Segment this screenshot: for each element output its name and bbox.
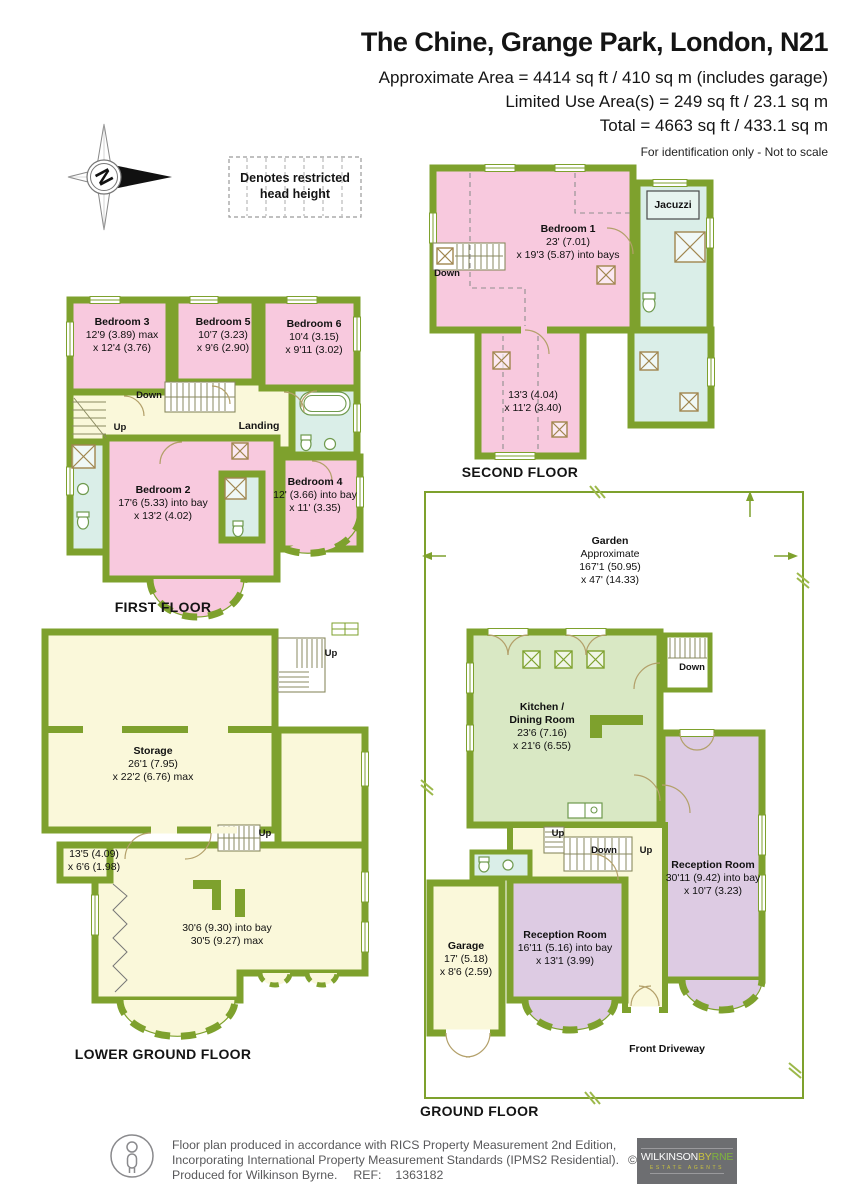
ground-floor-title: GROUND FLOOR	[420, 1103, 539, 1119]
total-area: Total = 4663 sq ft / 433.1 sq m	[361, 114, 828, 138]
french-door	[680, 730, 714, 737]
window	[287, 297, 317, 304]
shower-icon	[675, 232, 705, 262]
up-label: Up	[544, 828, 572, 839]
window	[759, 815, 766, 855]
window	[430, 213, 437, 243]
staircase-center	[165, 382, 235, 412]
up-label: Up	[251, 828, 279, 839]
toilet-icon	[479, 857, 489, 872]
attic-room	[631, 330, 711, 425]
down-label: Down	[674, 662, 710, 673]
boundary-break	[789, 1063, 801, 1078]
window	[362, 872, 369, 902]
door-g1ap	[151, 827, 177, 834]
scale-note: For identification only - Not to scale	[361, 145, 828, 159]
reception1-room	[662, 733, 762, 980]
corridor-dims-label: 13'5 (4.09) x 6'6 (1.98)	[44, 848, 144, 874]
logo-subtitle: ESTATE AGENTS	[650, 1165, 724, 1174]
window	[362, 752, 369, 786]
wilkinson-byrne-logo: WILKINSONBYRNE ESTATE AGENTS	[637, 1138, 737, 1184]
bay-window	[307, 973, 337, 985]
bay-window	[682, 980, 762, 1010]
lower-ground-plan: Storage 26'1 (7.95) x 22'2 (6.76) max Up…	[35, 622, 380, 1070]
rooflight-icon	[232, 443, 248, 459]
down-label: Down	[429, 268, 465, 279]
interior-wall	[48, 726, 83, 733]
door-arc	[446, 1033, 470, 1057]
toilet-icon	[643, 293, 655, 312]
up-label: Up	[632, 845, 660, 856]
ref-label: REF:	[353, 1168, 381, 1182]
shower-icon	[225, 478, 246, 499]
interior-wall	[122, 726, 188, 733]
bedroom6-label: Bedroom 6 10'4 (3.15) x 9'11 (3.02)	[259, 318, 369, 357]
jacuzzi-label: Jacuzzi	[641, 199, 705, 211]
boundary-arrow	[746, 491, 754, 517]
interior-wall	[212, 880, 221, 910]
reception1-label: Reception Room 30'11 (9.42) into bay x 1…	[647, 859, 779, 898]
toilet-icon	[233, 521, 243, 537]
rooflight-icon	[555, 651, 572, 668]
first-floor-plan: Bedroom 3 12'9 (3.89) max x 12'4 (3.76) …	[62, 292, 367, 622]
front-door-gap	[631, 1007, 659, 1014]
landing-label: Landing	[228, 420, 290, 432]
window	[354, 404, 361, 432]
up-label: Up	[106, 422, 134, 433]
bathtub-icon	[300, 392, 350, 415]
garage-door-gap	[446, 1030, 490, 1037]
window	[467, 663, 474, 693]
reception2-label: Reception Room 16'11 (5.16) into bay x 1…	[504, 929, 626, 968]
rooflight-icon	[437, 248, 453, 264]
toilet-icon	[301, 435, 311, 451]
french-door	[488, 629, 528, 636]
rooflight-icon	[493, 352, 510, 369]
lower-ground-title: LOWER GROUND FLOOR	[63, 1046, 263, 1062]
window	[495, 453, 535, 460]
window	[653, 180, 687, 187]
front-driveway-label: Front Driveway	[606, 1043, 728, 1056]
compass-icon: N	[66, 120, 178, 234]
storage-label: Storage 26'1 (7.95) x 22'2 (6.76) max	[88, 745, 218, 784]
rooflight-icon	[587, 651, 604, 668]
compass-rose: N	[66, 120, 178, 234]
staircase-up-top	[278, 638, 325, 692]
second-floor-dims-label: 13'3 (4.04) x 11'2 (3.40)	[483, 389, 583, 415]
bay-window	[525, 1000, 615, 1030]
second-floor-title: SECOND FLOOR	[440, 464, 600, 480]
kitchen-unit	[568, 803, 602, 818]
window	[332, 623, 358, 635]
down-label: Down	[586, 845, 622, 856]
second-floor-plan: Bedroom 1 23' (7.01) x 19'3 (5.87) into …	[425, 158, 715, 488]
rear-room	[278, 730, 365, 845]
page-title: The Chine, Grange Park, London, N21	[361, 27, 828, 58]
limited-area: Limited Use Area(s) = 249 sq ft / 23.1 s…	[361, 90, 828, 114]
ref-value: 1363182	[395, 1168, 443, 1182]
window	[708, 358, 715, 386]
restricted-height-text: Denotes restricted head height	[228, 171, 362, 202]
door-arc	[466, 1033, 490, 1057]
door-gap	[521, 327, 547, 334]
up-label: Up	[317, 648, 345, 659]
lower-room-dims-label: 30'6 (9.30) into bay 30'5 (9.27) max	[157, 922, 297, 948]
bedroom1-label: Bedroom 1 23' (7.01) x 19'3 (5.87) into …	[493, 223, 643, 262]
interior-wall	[235, 889, 245, 917]
bedroom4-label: Bedroom 4 12' (3.66) into bay x 11' (3.3…	[250, 476, 380, 515]
person-icon	[108, 1132, 156, 1180]
window	[485, 165, 515, 172]
boundary-break	[421, 780, 433, 795]
sink-icon	[325, 439, 336, 450]
rooflight-icon	[680, 393, 698, 411]
bedroom2-label: Bedroom 2 17'6 (5.33) into bay x 13'2 (4…	[98, 484, 228, 523]
window	[92, 895, 99, 935]
header: The Chine, Grange Park, London, N21 Appr…	[361, 27, 828, 159]
window	[707, 218, 714, 248]
sink-icon	[503, 860, 513, 870]
window	[362, 922, 369, 952]
rooflight-icon	[597, 266, 615, 284]
boundary-arrow	[774, 552, 798, 560]
rooflight-icon	[523, 651, 540, 668]
first-floor-title: FIRST FLOOR	[83, 599, 243, 615]
ground-floor-plan: Garden Approximate 167'1 (50.95) x 47' (…	[418, 485, 822, 1125]
toilet-icon	[77, 512, 89, 529]
window	[190, 297, 218, 304]
approx-area: Approximate Area = 4414 sq ft / 410 sq m…	[361, 66, 828, 90]
shower-icon	[72, 445, 95, 468]
bay-window	[120, 1000, 235, 1036]
bedroom3-label: Bedroom 3 12'9 (3.89) max x 12'4 (3.76)	[67, 316, 177, 355]
french-door	[566, 629, 606, 636]
logo-wordmark: WILKINSONBYRNE	[641, 1148, 733, 1163]
lower-ground-drawing	[35, 622, 380, 1070]
sink-icon	[78, 484, 89, 495]
garage-label: Garage 17' (5.18) x 8'6 (2.59)	[418, 940, 514, 979]
window	[467, 725, 474, 751]
down-label: Down	[132, 390, 166, 401]
footer: Floor plan produced in accordance with R…	[108, 1132, 727, 1183]
rooflight-icon	[640, 352, 658, 370]
kitchen-label: Kitchen / Dining Room 23'6 (7.16) x 21'6…	[482, 701, 602, 754]
interior-wall	[228, 726, 273, 733]
rooflight-icon	[552, 422, 567, 437]
bay-window	[260, 973, 290, 985]
window	[555, 165, 585, 172]
garden-label: Garden Approximate 167'1 (50.95) x 47' (…	[550, 535, 670, 588]
restricted-height-legend: Denotes restricted head height	[228, 156, 362, 218]
window	[90, 297, 120, 304]
window	[67, 467, 74, 495]
door-gap	[211, 827, 237, 834]
